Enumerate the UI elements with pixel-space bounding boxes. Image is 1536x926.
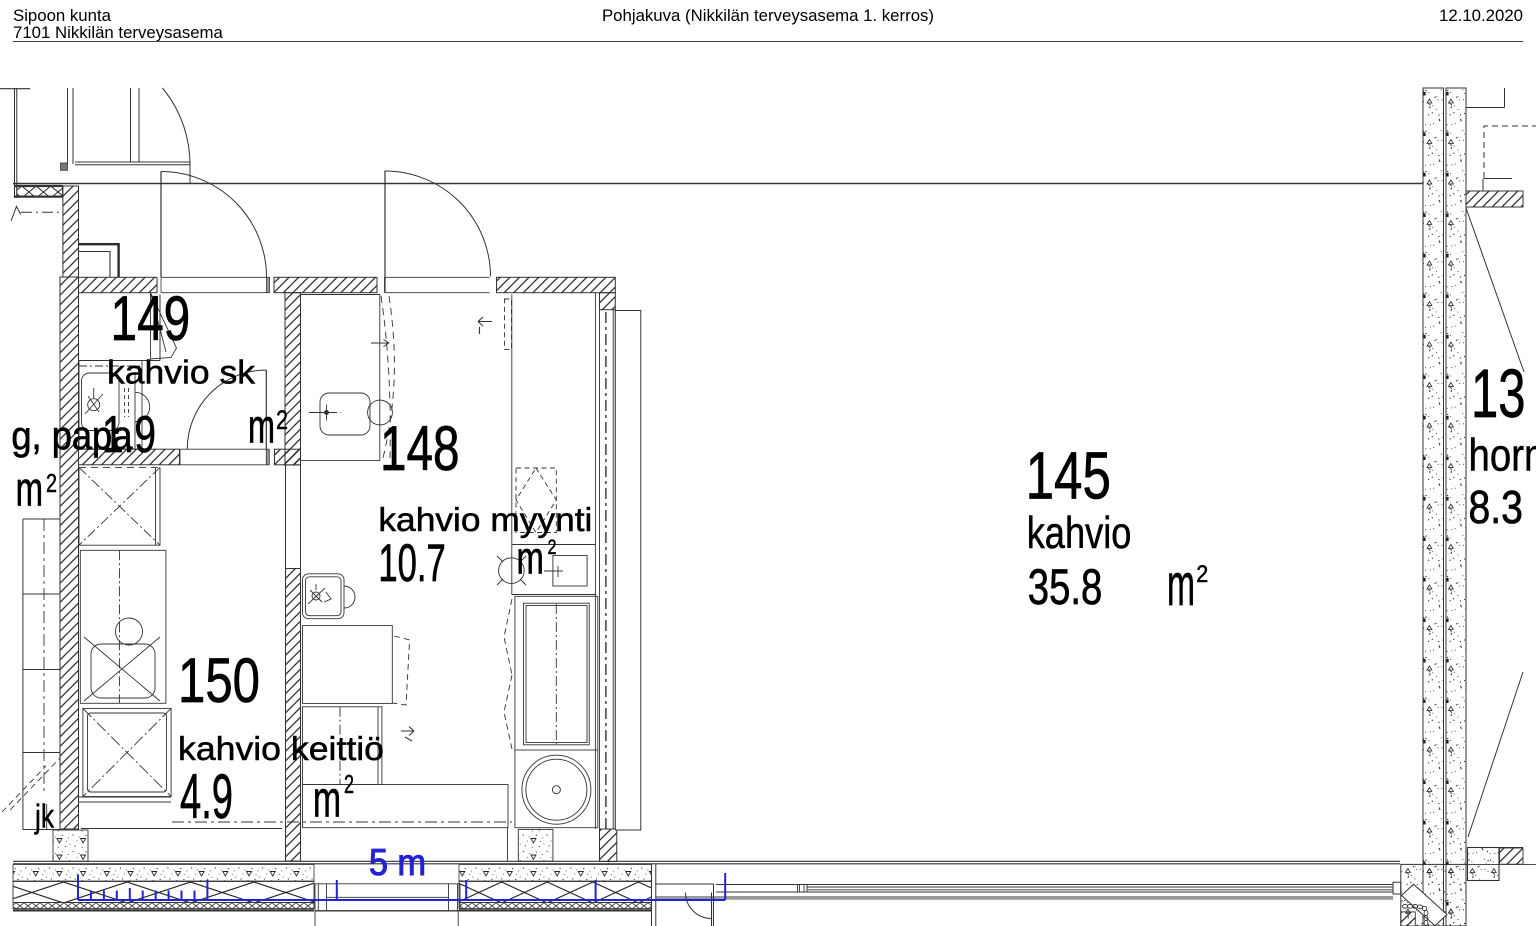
svg-text:hormi: hormi xyxy=(1469,430,1536,481)
svg-text:2: 2 xyxy=(548,534,557,559)
svg-text:12.10.2020: 12.10.2020 xyxy=(1439,6,1523,25)
svg-text:5 m: 5 m xyxy=(369,842,426,883)
svg-text:13: 13 xyxy=(1471,356,1526,432)
svg-text:149: 149 xyxy=(111,284,191,354)
svg-text:m: m xyxy=(517,533,544,584)
svg-text:m: m xyxy=(1167,551,1195,618)
svg-text:35.8: 35.8 xyxy=(1028,559,1103,615)
svg-text:jk: jk xyxy=(34,798,54,835)
svg-text:m: m xyxy=(248,401,275,454)
svg-text:2: 2 xyxy=(276,404,288,435)
svg-text:8.3: 8.3 xyxy=(1469,481,1523,533)
svg-text:Pohjakuva (Nikkilän terveysas: Pohjakuva (Nikkilän terveysasema 1. kerr… xyxy=(602,6,934,25)
svg-text:2: 2 xyxy=(46,468,57,498)
svg-text:10.7: 10.7 xyxy=(378,534,445,593)
svg-text:kahvio: kahvio xyxy=(1027,507,1132,558)
svg-text:4.9: 4.9 xyxy=(180,762,233,832)
svg-text:145: 145 xyxy=(1026,439,1111,514)
svg-text:2: 2 xyxy=(1196,561,1208,588)
svg-text:150: 150 xyxy=(178,646,260,716)
svg-text:2: 2 xyxy=(344,769,354,799)
svg-text:kahvio sk: kahvio sk xyxy=(107,355,255,392)
svg-text:148: 148 xyxy=(380,414,460,484)
svg-text:m: m xyxy=(16,464,43,517)
svg-text:g, papa: g, papa xyxy=(11,414,133,458)
svg-text:7101 Nikkilän terveysasema: 7101 Nikkilän terveysasema xyxy=(13,23,224,42)
svg-text:m: m xyxy=(313,771,341,828)
